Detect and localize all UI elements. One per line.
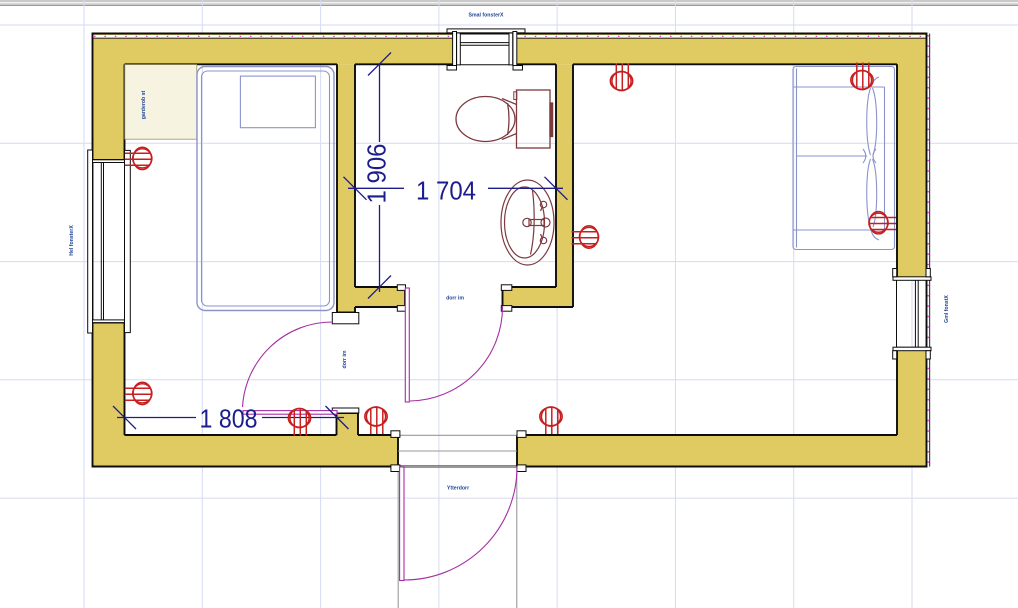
svg-text:dorr im: dorr im xyxy=(446,296,464,302)
svg-text:Hel fonsterX: Hel fonsterX xyxy=(69,225,75,256)
svg-text:garderob st: garderob st xyxy=(141,90,147,119)
svg-text:1 906: 1 906 xyxy=(362,144,392,204)
svg-text:1 704: 1 704 xyxy=(416,176,476,206)
svg-text:1 808: 1 808 xyxy=(200,404,258,434)
svg-text:Smal fonsterX: Smal fonsterX xyxy=(469,13,504,19)
svg-text:Ytterdorr: Ytterdorr xyxy=(447,486,469,492)
svg-text:dorr im: dorr im xyxy=(342,350,348,368)
svg-text:Gml fonstX: Gml fonstX xyxy=(944,295,950,323)
